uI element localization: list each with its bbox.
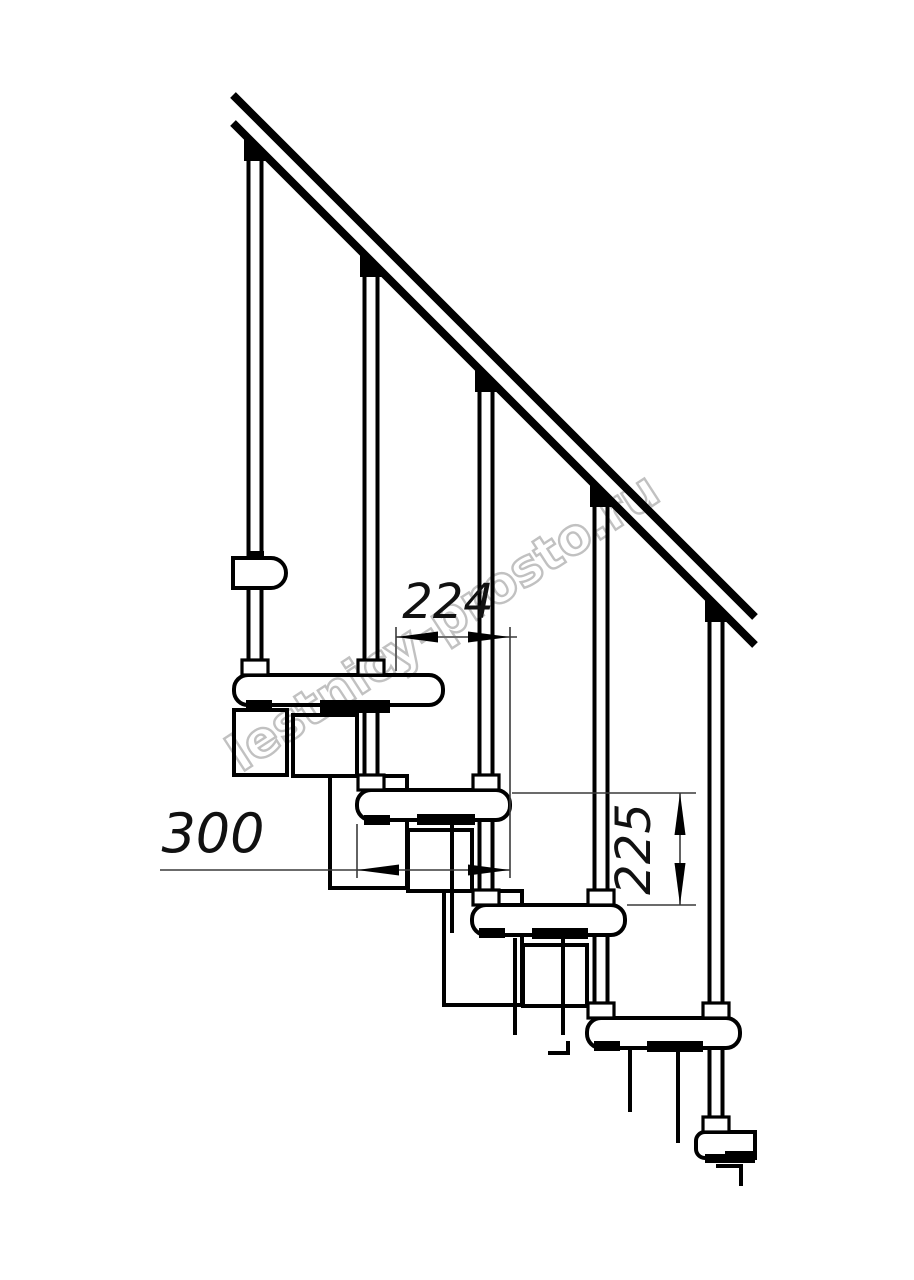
rail-connector-wedge <box>244 130 266 161</box>
module-box <box>408 830 472 891</box>
arrowhead-right-icon <box>468 865 510 876</box>
dimension-depth-label: 300 <box>161 802 264 865</box>
dimension-rise-225: 225 <box>512 793 696 905</box>
arrowhead-up-icon <box>675 793 686 835</box>
floor-step-outline <box>716 1166 741 1186</box>
tread-stub-top <box>233 558 286 588</box>
rail-connector-wedge <box>705 591 727 622</box>
baluster-5 <box>710 613 723 1132</box>
rail-connector-wedge <box>360 246 382 277</box>
watermark-text: lestnicy-prosto.ru <box>216 461 669 783</box>
baluster-1 <box>249 152 262 675</box>
dimension-rise-label: 225 <box>606 803 662 895</box>
baluster-3 <box>480 383 493 905</box>
arrowhead-down-icon <box>675 863 686 905</box>
baluster-4 <box>595 498 608 1018</box>
technical-drawing-canvas: 224 300 225 lestnicy-prosto.ru <box>0 0 914 1280</box>
rail-connector-wedge <box>475 361 497 392</box>
staircase-drawing: 224 300 225 lestnicy-prosto.ru <box>0 0 914 1280</box>
module-box <box>523 945 587 1006</box>
